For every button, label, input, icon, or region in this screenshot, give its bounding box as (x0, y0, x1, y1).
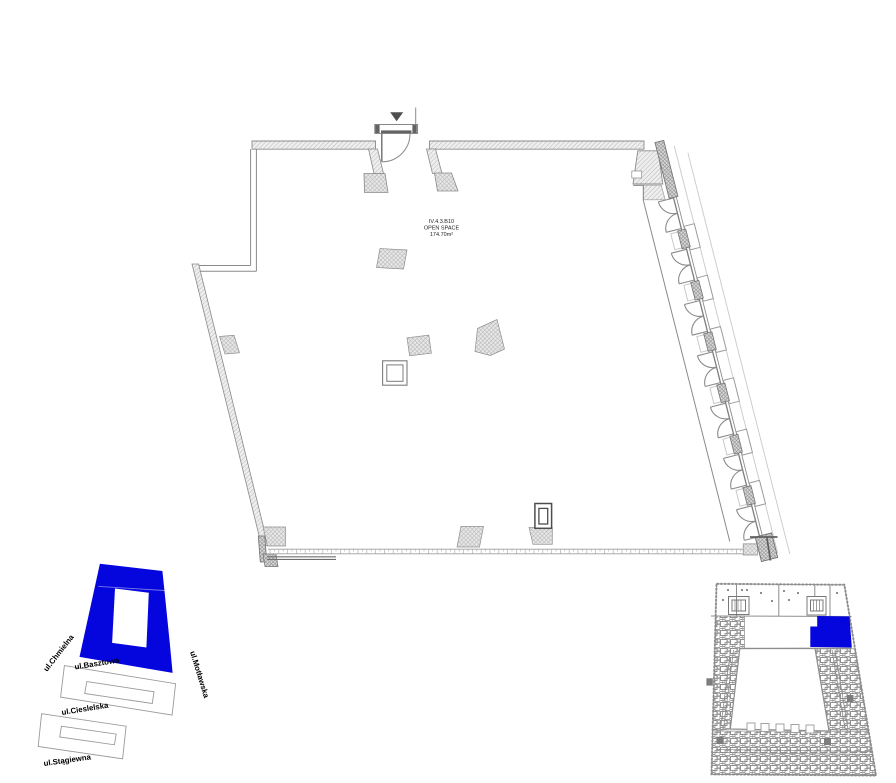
svg-text:OPEN SPACE: OPEN SPACE (424, 225, 460, 231)
svg-text:174.70m²: 174.70m² (430, 232, 453, 238)
svg-text:IV.4.3.B10: IV.4.3.B10 (429, 219, 454, 225)
